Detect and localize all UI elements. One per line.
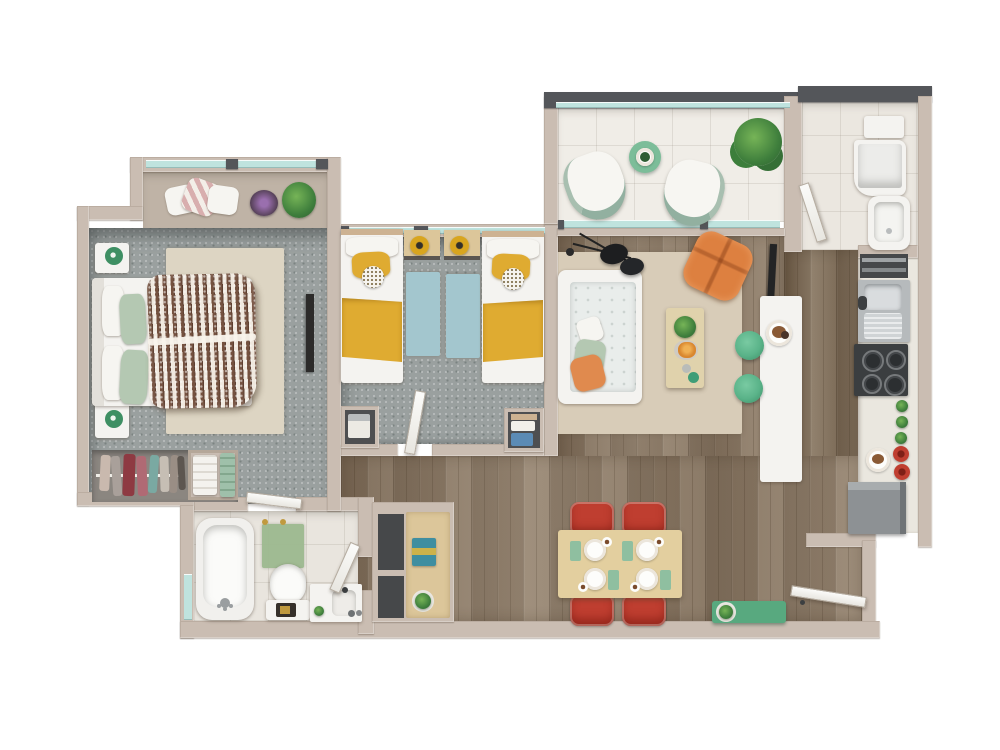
towel-stack-green <box>220 453 235 497</box>
kids-rug-left <box>406 272 440 356</box>
vanity-jar-2 <box>356 610 362 616</box>
table-lamp-top <box>105 247 123 265</box>
counter-greens-2 <box>896 416 908 428</box>
bathtub-basin <box>203 525 247 607</box>
dining-chair-bottom-left <box>570 594 614 626</box>
twin-right-yellow-blanket <box>483 300 543 362</box>
wall-master-right <box>327 157 341 511</box>
vanity-jar-1 <box>348 610 355 617</box>
living-balcony-window <box>558 220 780 228</box>
vanity-plant <box>314 606 324 616</box>
bath-hook-2 <box>280 519 286 525</box>
cup-top-right <box>654 537 664 547</box>
master-window-right <box>238 160 320 168</box>
stove-burner-2 <box>886 350 906 370</box>
balcony-rail-glass <box>556 102 790 108</box>
cup-bottom-left <box>578 582 588 592</box>
alcove-green-plant <box>282 182 316 218</box>
table-lamp-bottom <box>105 410 123 428</box>
twin-left-dot-cushion <box>362 266 384 288</box>
red-pot-2 <box>894 464 910 480</box>
kids-rug-right <box>446 274 480 358</box>
kids-stool-right <box>450 236 469 255</box>
coffee-table-glass <box>682 364 691 373</box>
kitchen-shelf-board-1 <box>862 258 906 262</box>
kids-closet-left-towelbox <box>348 414 370 438</box>
kids-stool-left <box>410 236 429 255</box>
wall-laundry-top <box>798 86 932 102</box>
utility-sink-basin <box>874 202 904 242</box>
counter-food <box>872 454 884 464</box>
living-window-frame-left <box>558 220 564 229</box>
hanging-clothes-1 <box>99 455 111 491</box>
balcony-table-plant <box>640 152 650 162</box>
bath-mat <box>262 524 304 568</box>
coffee-table-bowl <box>678 342 696 358</box>
twin-right-dot-cushion <box>502 268 524 290</box>
cup-top-left <box>602 537 612 547</box>
toilet-bowl <box>270 564 306 604</box>
napkin-bottom-left <box>608 570 619 590</box>
wall-kids-living <box>544 224 558 456</box>
kids-closet-towel-blue <box>511 433 533 446</box>
sage-pillow-bottom <box>119 349 150 404</box>
patterned-duvet <box>147 273 257 409</box>
twin-left-yellow-blanket <box>342 298 402 362</box>
kitchen-shelf-board-2 <box>862 268 906 272</box>
wall-bottom <box>180 621 880 638</box>
kids-closet-shelf <box>511 414 537 420</box>
floor-plan-canvas <box>0 0 1000 750</box>
master-wall-tv <box>306 294 314 372</box>
entry-door-handle <box>800 600 805 605</box>
kitchen-faucet <box>858 296 867 310</box>
bench-plant <box>719 605 733 619</box>
coffee-table-plant <box>674 316 696 338</box>
kitchen-sink-drainer <box>864 313 902 339</box>
utility-sink-drain <box>886 228 892 234</box>
kids-closet-towel-white <box>511 421 535 431</box>
towel-stack-white <box>193 455 217 495</box>
twin-bed-right-headrail <box>482 231 544 237</box>
hall-closet-niche-bottom <box>378 576 404 618</box>
dining-chair-bottom-right <box>622 594 666 626</box>
bar-stool-bottom <box>734 374 763 403</box>
refrigerator-top-edge <box>848 482 906 490</box>
hanging-clothes-3 <box>122 454 135 496</box>
console-towel-teal <box>412 538 436 566</box>
hanging-clothes-6 <box>159 456 169 492</box>
laundry-shelf <box>864 116 904 138</box>
bathroom-window <box>184 574 192 620</box>
bench-pillow-2 <box>206 184 240 216</box>
master-window-frame <box>226 159 238 169</box>
floor-lamp-base <box>566 248 574 256</box>
napkin-top-right <box>622 541 633 561</box>
wall-balcony-laundry <box>784 96 802 252</box>
vanity-faucet <box>342 587 348 593</box>
hall-closet-niche-top <box>378 514 404 570</box>
wall-balcony-left <box>544 96 558 224</box>
toilet-tank-gold-box <box>280 606 290 614</box>
bathtub-faucet <box>220 598 230 608</box>
washing-machine-lid <box>858 144 902 188</box>
twin-bed-left-headrail <box>341 229 403 235</box>
wall-left <box>77 206 89 505</box>
balcony-large-plant <box>734 118 782 166</box>
counter-snack-dark <box>781 331 789 339</box>
napkin-top-left <box>570 541 581 561</box>
sage-pillow-top <box>119 293 148 344</box>
refrigerator-side <box>900 482 906 534</box>
hanging-clothes-4 <box>136 456 148 496</box>
stove-burner-1 <box>862 350 884 372</box>
kids-desk-right-edge <box>444 256 480 260</box>
napkin-bottom-right <box>660 570 671 590</box>
master-window-cap <box>316 159 328 169</box>
bath-hook-1 <box>262 519 268 525</box>
counter-greens-1 <box>896 400 908 412</box>
console-plant <box>415 593 431 609</box>
stove-burner-4 <box>884 374 906 396</box>
counter-greens-3 <box>895 432 907 444</box>
kitchen-sink-basin <box>864 284 902 310</box>
purple-plant <box>250 190 278 216</box>
stove-burner-3 <box>862 374 882 394</box>
bar-stool-top <box>735 331 764 360</box>
wall-right <box>918 96 932 547</box>
red-pot-1 <box>893 446 909 462</box>
duvet-seam <box>148 333 256 346</box>
wall-living-window-sill <box>557 228 785 236</box>
cup-bottom-right <box>630 582 640 592</box>
kids-desk-left-edge <box>404 256 440 260</box>
master-window-left <box>146 160 226 168</box>
coffee-table-cup <box>688 372 699 383</box>
